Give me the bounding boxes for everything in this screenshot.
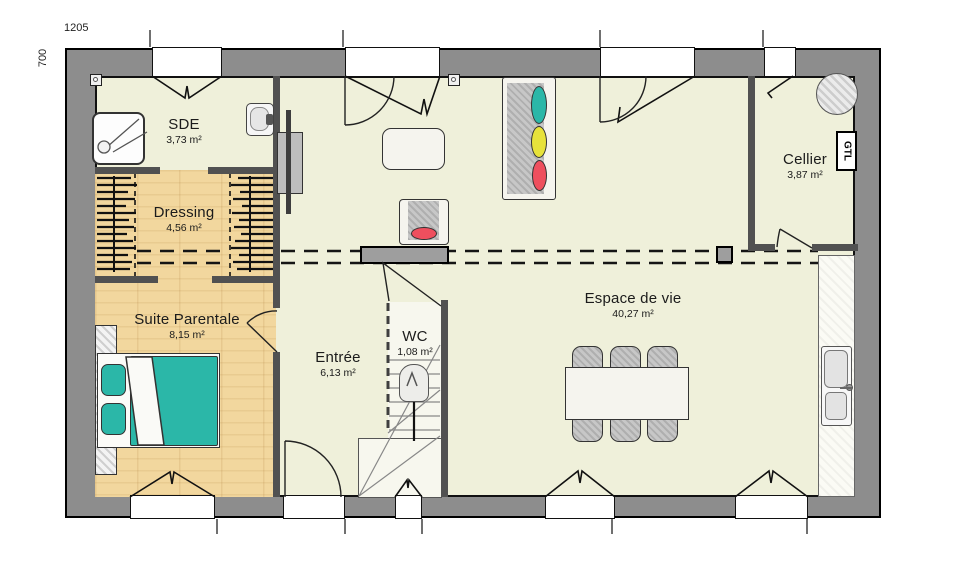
sofa-cushion-red	[532, 160, 547, 191]
room-area: 3,73 m²	[166, 134, 202, 146]
sofa-cushion-yellow	[531, 126, 547, 158]
room-label-suite-parentale: Suite Parentale 8,15 m²	[134, 311, 240, 341]
room-area: 1,08 m²	[397, 346, 433, 358]
door-cellier-exterior	[764, 47, 796, 77]
room-name: Dressing	[154, 204, 215, 221]
room-name: SDE	[166, 116, 202, 133]
dimension-width-label: 1205	[64, 22, 88, 34]
bed-duvet	[130, 356, 218, 446]
sink-basin-large	[824, 350, 848, 388]
room-name: Cellier	[783, 151, 827, 168]
gtl-label: GTL	[841, 141, 852, 161]
room-name: Espace de vie	[585, 290, 682, 307]
dimension-height-label: 700	[37, 49, 49, 67]
washbasin-tap	[266, 114, 273, 125]
armchair-icon	[399, 199, 449, 245]
room-area: 8,15 m²	[134, 329, 240, 341]
room-name: Suite Parentale	[134, 311, 240, 328]
wall-suite-entree	[273, 352, 280, 497]
ceiling-light-icon	[448, 74, 460, 86]
toilet-icon	[399, 364, 429, 402]
bed-pillow	[101, 364, 126, 396]
wall-dressing-suite-right	[212, 276, 277, 283]
room-name: WC	[397, 328, 433, 345]
room-label-wc: WC 1,08 m²	[397, 328, 433, 358]
window-sde	[152, 47, 222, 77]
room-label-espace-de-vie: Espace de vie 40,27 m²	[585, 290, 682, 320]
armchair-cushion	[411, 227, 437, 240]
sofa-icon	[502, 77, 556, 200]
room-area: 6,13 m²	[315, 367, 360, 379]
water-heater-icon	[816, 73, 858, 115]
wall-sde-dressing-right	[208, 167, 277, 174]
sink-basin-small	[825, 392, 847, 420]
coffee-table-icon	[382, 128, 445, 170]
wall-cellier-bottom-right	[812, 244, 858, 251]
wall-cellier-left	[748, 76, 755, 248]
ceiling-light-bulb	[451, 77, 456, 82]
sofa-cushion-teal	[531, 86, 547, 124]
wall-cellier-bottom-left	[748, 244, 775, 251]
chair-icon	[572, 418, 603, 442]
window-suite	[130, 495, 215, 519]
gtl-box: GTL	[836, 131, 857, 171]
kitchen-sink-icon	[821, 346, 852, 426]
ceiling-light-icon	[90, 74, 102, 86]
room-label-entree: Entrée 6,13 m²	[315, 349, 360, 379]
bed-pillow	[101, 403, 126, 435]
chair-icon	[610, 418, 641, 442]
floor-plan: 1205 700	[0, 0, 960, 568]
wall-dressing-suite-left	[95, 276, 158, 283]
low-partition	[360, 246, 449, 264]
sink-tap	[846, 384, 853, 391]
understair-closet	[358, 438, 442, 498]
shower-icon	[92, 112, 145, 165]
chair-icon	[647, 418, 678, 442]
washbasin-icon	[246, 103, 274, 136]
room-area: 3,87 m²	[783, 169, 827, 181]
ceiling-light-bulb	[93, 77, 98, 82]
room-label-sde: SDE 3,73 m²	[166, 116, 202, 146]
window-living-bottom-2	[735, 495, 808, 519]
dining-table-icon	[565, 367, 689, 420]
door-entree-garden	[283, 495, 345, 519]
room-label-dressing: Dressing 4,56 m²	[154, 204, 215, 234]
post	[716, 246, 733, 263]
room-name: Entrée	[315, 349, 360, 366]
wall-sde-dressing-left	[95, 167, 160, 174]
room-area: 40,27 m²	[585, 308, 682, 320]
front-door	[345, 47, 440, 77]
window-living-bottom-1	[545, 495, 615, 519]
room-area: 4,56 m²	[154, 222, 215, 234]
wall-stair-right	[441, 300, 448, 497]
window-stair	[395, 495, 422, 519]
room-label-cellier: Cellier 3,87 m²	[783, 151, 827, 181]
tv-icon	[286, 110, 291, 214]
window-living-top	[600, 47, 695, 77]
